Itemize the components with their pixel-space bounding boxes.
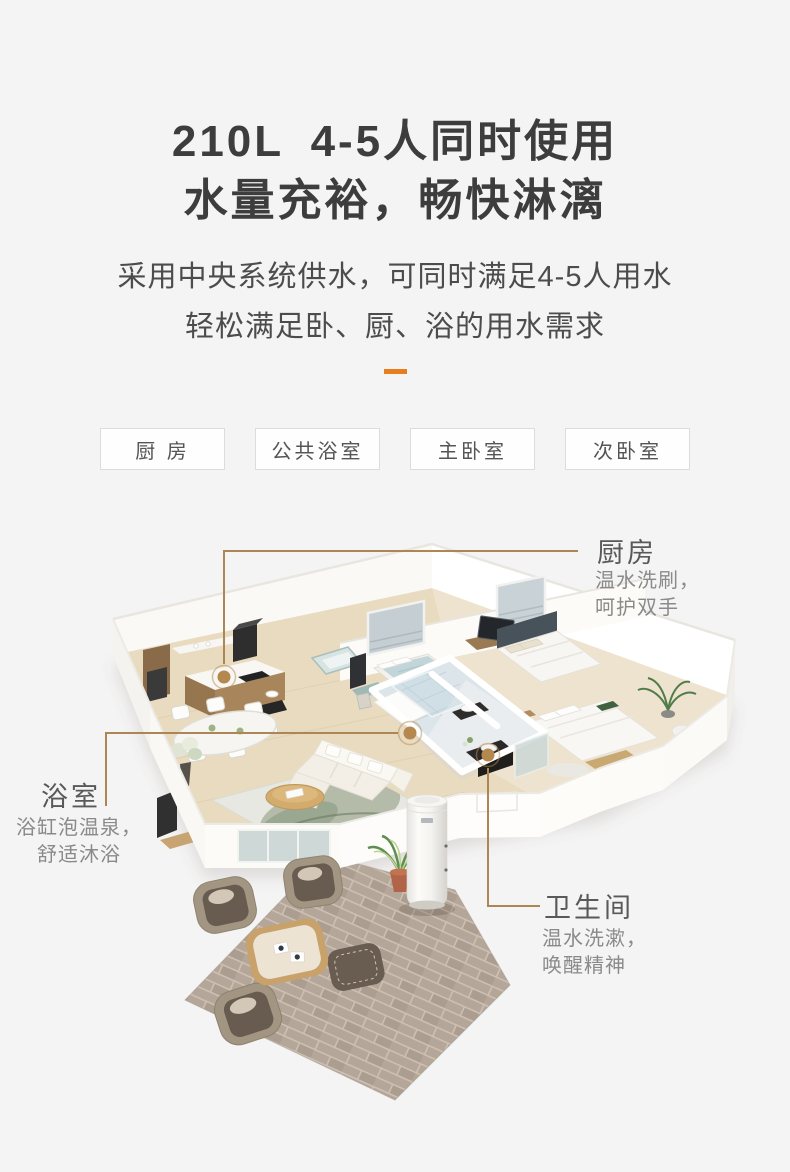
- room-tag-list: 厨 房 公共浴室 主卧室 次卧室: [0, 428, 790, 470]
- subtitle-line-1: 采用中央系统供水，可同时满足4-5人用水: [0, 252, 790, 302]
- callout-dot-kitchen-icon: [218, 671, 231, 684]
- room-tag-second-bedroom: 次卧室: [565, 428, 690, 470]
- callout-title-washroom: 卫生间: [544, 886, 634, 925]
- accent-divider: [384, 369, 407, 374]
- header: 210L 4-5人同时使用 水量充裕，畅快淋漓 采用中央系统供水，可同时满足4-…: [0, 0, 790, 374]
- water-heater: [399, 795, 455, 916]
- title-line-1: 210L 4-5人同时使用: [0, 112, 790, 171]
- range-hood: [233, 624, 257, 662]
- room-tag-public-bath: 公共浴室: [255, 428, 380, 470]
- callout-dot-washroom-icon: [482, 749, 495, 762]
- page-title: 210L 4-5人同时使用 水量充裕，畅快淋漓: [0, 112, 790, 230]
- callout-desc-kitchen: 温水洗刷， 呵护双手: [595, 568, 700, 622]
- wicker-chair: [281, 854, 344, 911]
- room-tag-master-bedroom: 主卧室: [410, 428, 535, 470]
- callout-desc-bathroom: 浴缸泡温泉， 舒适沐浴: [12, 815, 146, 869]
- wicker-chair: [190, 873, 260, 936]
- coffee-table: [266, 785, 324, 810]
- title-line-2: 水量充裕，畅快淋漓: [0, 171, 790, 230]
- product-detail-section: 210L 4-5人同时使用 水量充裕，畅快淋漓 采用中央系统供水，可同时满足4-…: [0, 0, 790, 1172]
- heater-logo: [421, 818, 433, 823]
- subtitle-line-2: 轻松满足卧、厨、浴的用水需求: [0, 302, 790, 352]
- room-tag-kitchen: 厨 房: [100, 428, 225, 470]
- callout-title-kitchen: 厨房: [597, 531, 657, 570]
- subtitle: 采用中央系统供水，可同时满足4-5人用水 轻松满足卧、厨、浴的用水需求: [0, 252, 790, 352]
- callout-dot-bathroom-icon: [404, 727, 417, 740]
- callout-desc-washroom: 温水洗漱， 唤醒精神: [542, 926, 647, 980]
- callout-title-bathroom: 浴室: [41, 775, 101, 814]
- floorplan-scene: 厨房 温水洗刷， 呵护双手 浴室 浴缸泡温泉， 舒适沐浴 卫生间 温水洗漱， 唤…: [0, 520, 790, 1132]
